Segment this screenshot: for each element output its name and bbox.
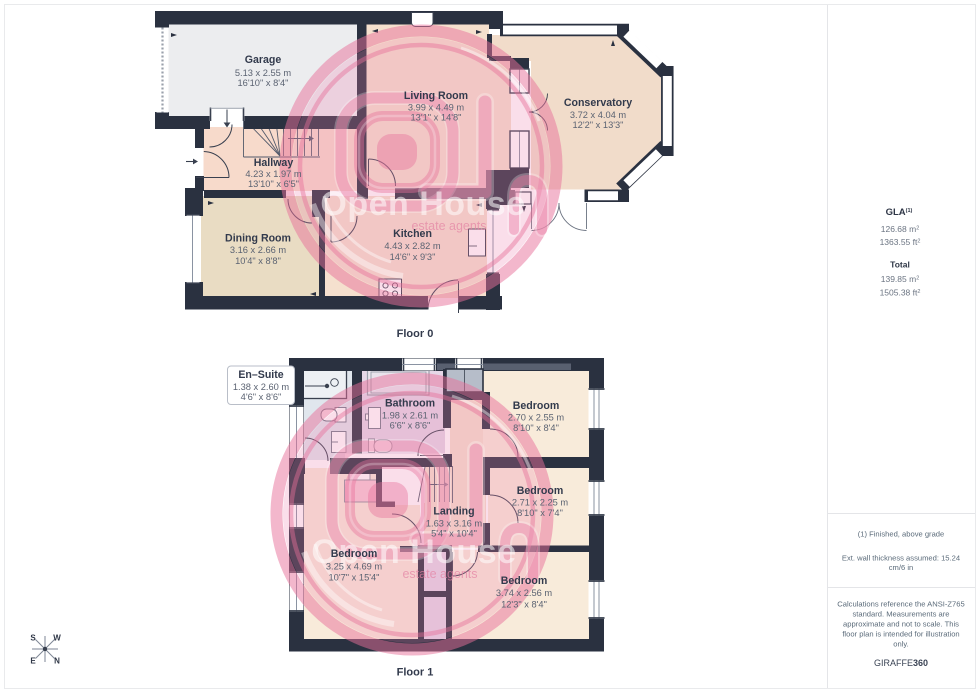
svg-text:Bedroom: Bedroom — [513, 400, 560, 412]
svg-text:(1) Finished, above grade: (1) Finished, above grade — [858, 530, 945, 539]
svg-text:3.99 x 4.49 m: 3.99 x 4.49 m — [408, 103, 465, 113]
svg-text:W: W — [53, 634, 61, 643]
svg-text:Total: Total — [890, 260, 910, 270]
svg-text:Floor 0: Floor 0 — [397, 328, 434, 340]
svg-text:Ext. wall thickness assumed: 1: Ext. wall thickness assumed: 15.24 — [842, 554, 960, 563]
svg-text:Conservatory: Conservatory — [564, 97, 632, 109]
svg-text:3.74 x 2.56 m: 3.74 x 2.56 m — [496, 588, 553, 598]
svg-text:5.13 x 2.55 m: 5.13 x 2.55 m — [235, 68, 292, 78]
svg-text:3.25 x 4.69 m: 3.25 x 4.69 m — [326, 562, 383, 572]
svg-text:10'7" x 15'4": 10'7" x 15'4" — [329, 573, 380, 583]
svg-text:Bathroom: Bathroom — [385, 398, 435, 410]
svg-text:1.98 x 2.61 m: 1.98 x 2.61 m — [382, 411, 439, 421]
svg-text:Living Room: Living Room — [404, 90, 468, 102]
svg-text:8'10" x 7'4": 8'10" x 7'4" — [517, 508, 563, 518]
svg-text:13'1" x 14'8": 13'1" x 14'8" — [411, 113, 462, 123]
svg-text:3.72 x 4.04 m: 3.72 x 4.04 m — [570, 110, 627, 120]
svg-text:3.16 x 2.66 m: 3.16 x 2.66 m — [230, 245, 287, 255]
svg-text:1363.55 ft2: 1363.55 ft2 — [880, 237, 921, 247]
svg-text:Bedroom: Bedroom — [501, 575, 548, 587]
svg-text:139.85 m2: 139.85 m2 — [881, 274, 920, 284]
svg-text:Landing: Landing — [433, 506, 474, 518]
svg-text:2.70 x 2.55 m: 2.70 x 2.55 m — [508, 413, 565, 423]
svg-text:Bedroom: Bedroom — [517, 485, 564, 497]
svg-text:En–Suite: En–Suite — [238, 369, 283, 381]
svg-text:Floor 1: Floor 1 — [397, 667, 434, 679]
svg-text:4.43 x 2.82 m: 4.43 x 2.82 m — [384, 241, 441, 251]
svg-text:14'6" x 9'3": 14'6" x 9'3" — [390, 252, 436, 262]
svg-text:1.63 x 3.16 m: 1.63 x 3.16 m — [426, 519, 483, 529]
svg-text:1.38 x 2.60 m: 1.38 x 2.60 m — [233, 382, 290, 392]
svg-text:12'2" x 13'3": 12'2" x 13'3" — [573, 120, 624, 130]
svg-text:E: E — [30, 657, 36, 666]
svg-text:6'6" x 8'6": 6'6" x 8'6" — [390, 421, 431, 431]
svg-text:floor plan is intended for ill: floor plan is intended for illustration — [842, 630, 959, 639]
svg-text:4.23 x 1.97 m: 4.23 x 1.97 m — [245, 169, 302, 179]
svg-text:10'4" x 8'8": 10'4" x 8'8" — [235, 256, 281, 266]
svg-text:8'10" x 8'4": 8'10" x 8'4" — [513, 423, 559, 433]
svg-text:S: S — [30, 634, 36, 643]
svg-text:Garage: Garage — [245, 54, 282, 66]
svg-text:16'10" x 8'4": 16'10" x 8'4" — [238, 78, 289, 88]
svg-text:cm/6 in: cm/6 in — [889, 563, 913, 572]
svg-text:GIRAFFE360: GIRAFFE360 — [874, 658, 928, 668]
svg-text:only.: only. — [893, 640, 908, 649]
svg-text:13'10" x 6'5": 13'10" x 6'5" — [248, 179, 299, 189]
svg-text:126.68 m2: 126.68 m2 — [881, 224, 920, 234]
svg-text:N: N — [54, 657, 60, 666]
svg-text:5'4" x 10'4": 5'4" x 10'4" — [431, 529, 477, 539]
svg-text:Hallway: Hallway — [254, 157, 294, 169]
svg-text:12'3" x 8'4": 12'3" x 8'4" — [501, 600, 547, 610]
svg-text:Calculations reference the ANS: Calculations reference the ANSI-Z765 — [837, 600, 964, 609]
svg-text:4'6" x 8'6": 4'6" x 8'6" — [241, 392, 282, 402]
svg-text:1505.38 ft2: 1505.38 ft2 — [880, 288, 921, 298]
svg-text:Bedroom: Bedroom — [331, 548, 378, 560]
svg-text:Kitchen: Kitchen — [393, 228, 432, 240]
svg-text:2.71 x 2.25 m: 2.71 x 2.25 m — [512, 498, 569, 508]
svg-text:Dining Room: Dining Room — [225, 233, 291, 245]
svg-text:approximate and not to scale.: approximate and not to scale. This — [843, 620, 959, 629]
svg-text:standard. Measurements are: standard. Measurements are — [852, 610, 949, 619]
